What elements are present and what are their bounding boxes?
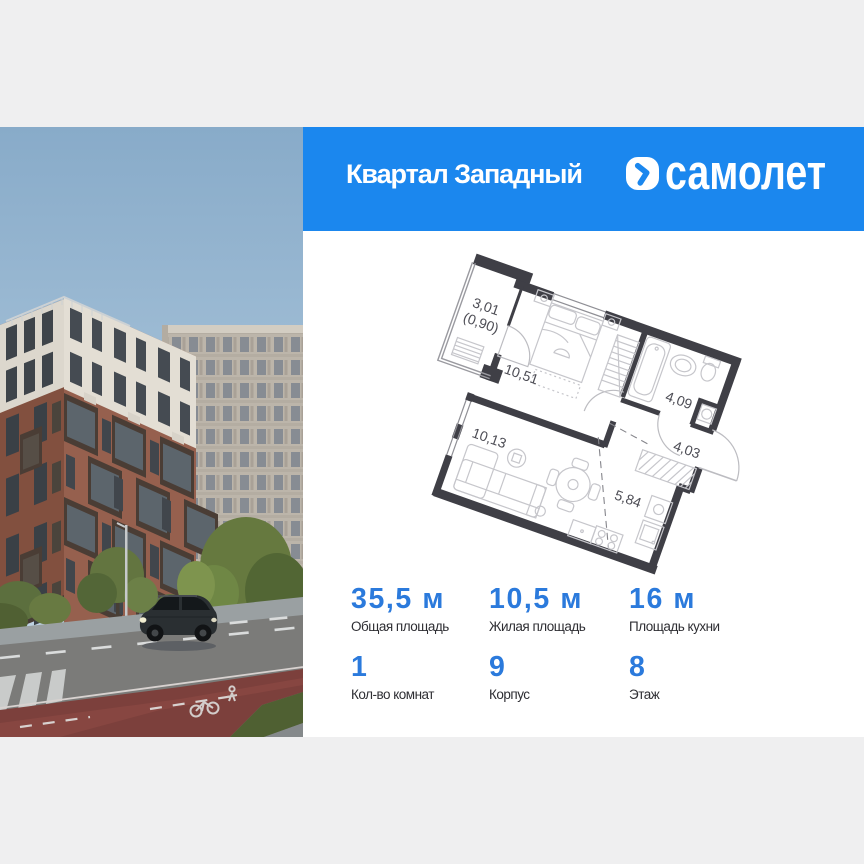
svg-text:Квартал Западный: Квартал Западный (346, 159, 583, 189)
svg-text:самолет: самолет (665, 146, 826, 200)
